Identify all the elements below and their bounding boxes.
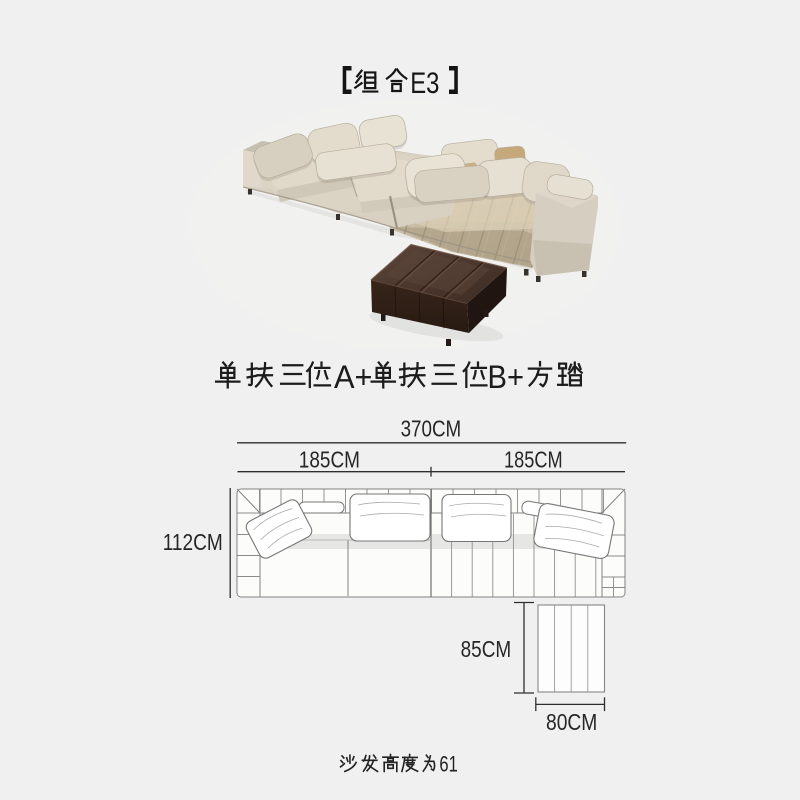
- svg-text:185CM: 185CM: [504, 447, 563, 473]
- svg-text:185CM: 185CM: [299, 447, 360, 473]
- svg-text:B+: B+: [488, 359, 525, 395]
- svg-text:80CM: 80CM: [546, 709, 597, 735]
- svg-text:85CM: 85CM: [461, 636, 512, 662]
- svg-text:61: 61: [439, 752, 457, 777]
- svg-text:112CM: 112CM: [163, 529, 223, 555]
- svg-text:370CM: 370CM: [401, 415, 462, 441]
- svg-text:E3: E3: [410, 67, 439, 100]
- svg-text:A+: A+: [334, 359, 373, 395]
